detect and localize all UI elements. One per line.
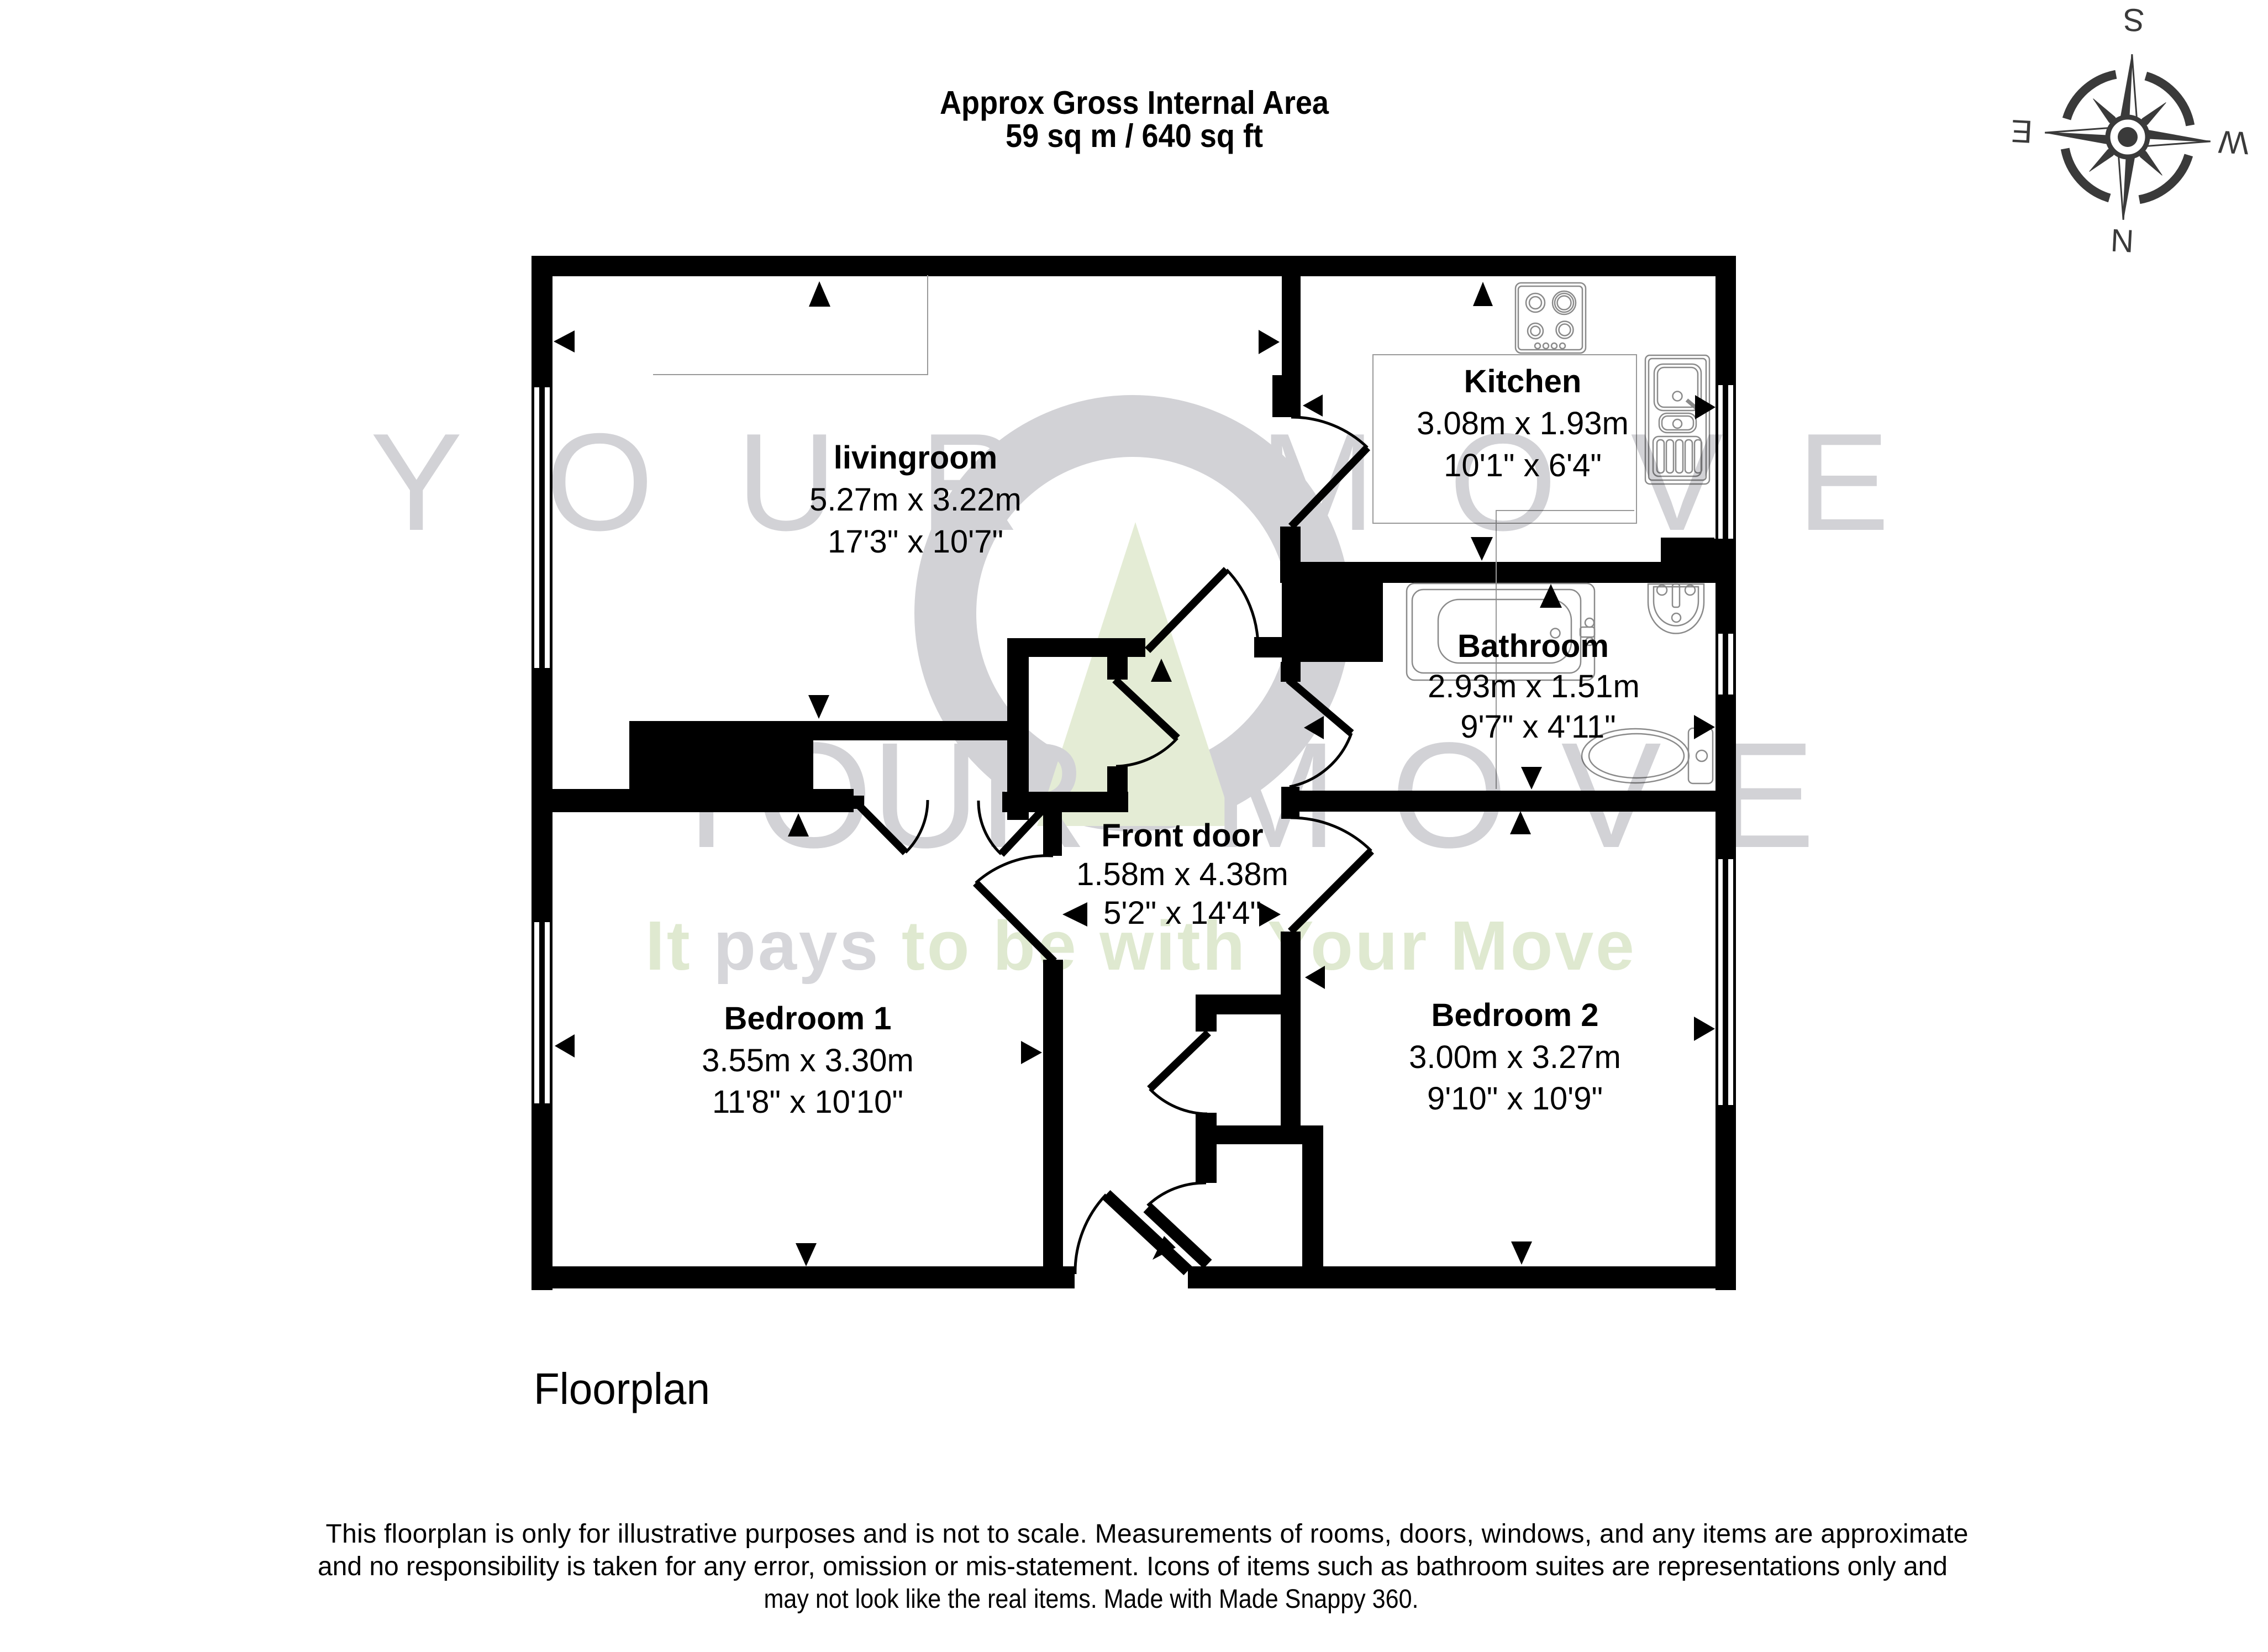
svg-text:1.58m x 4.38m: 1.58m x 4.38m bbox=[1076, 856, 1288, 892]
svg-text:and no responsibility is taken: and no responsibility is taken for any e… bbox=[318, 1552, 1948, 1581]
svg-text:Bedroom 2: Bedroom 2 bbox=[1432, 997, 1599, 1033]
svg-text:11'8" x 10'10": 11'8" x 10'10" bbox=[712, 1084, 903, 1120]
svg-text:livingroom: livingroom bbox=[834, 440, 997, 476]
svg-text:E: E bbox=[2010, 113, 2033, 150]
svg-text:3.55m x 3.30m: 3.55m x 3.30m bbox=[702, 1043, 914, 1078]
svg-text:Kitchen: Kitchen bbox=[1464, 364, 1582, 399]
svg-text:Bedroom 1: Bedroom 1 bbox=[724, 1001, 892, 1037]
svg-text:2.93m x 1.51m: 2.93m x 1.51m bbox=[1428, 669, 1640, 704]
svg-text:This floorplan is only for ill: This floorplan is only for illustrative … bbox=[326, 1519, 1969, 1549]
svg-text:5.27m x 3.22m: 5.27m x 3.22m bbox=[809, 482, 1022, 518]
svg-text:YOUR: YOUR bbox=[656, 711, 1087, 879]
svg-text:9'7" x 4'11": 9'7" x 4'11" bbox=[1460, 709, 1616, 745]
svg-text:5'2" x 14'4": 5'2" x 14'4" bbox=[1103, 895, 1261, 931]
svg-text:17'3" x 10'7": 17'3" x 10'7" bbox=[828, 524, 1003, 560]
svg-text:9'10" x 10'9": 9'10" x 10'9" bbox=[1427, 1081, 1603, 1117]
svg-text:10'1" x 6'4": 10'1" x 6'4" bbox=[1444, 448, 1602, 483]
svg-text:W: W bbox=[2217, 124, 2249, 161]
svg-text:59 sq m / 640 sq ft: 59 sq m / 640 sq ft bbox=[1006, 118, 1263, 154]
svg-text:N: N bbox=[2110, 222, 2135, 259]
svg-text:3.08m x 1.93m: 3.08m x 1.93m bbox=[1417, 406, 1629, 441]
svg-text:Bathroom: Bathroom bbox=[1457, 628, 1609, 664]
svg-text:Approx Gross Internal Area: Approx Gross Internal Area bbox=[940, 85, 1329, 121]
svg-text:Front door: Front door bbox=[1101, 818, 1263, 854]
svg-text:3.00m x 3.27m: 3.00m x 3.27m bbox=[1409, 1039, 1621, 1075]
svg-text:may not look like the real ite: may not look like the real items. Made w… bbox=[764, 1585, 1419, 1614]
svg-text:Floorplan: Floorplan bbox=[534, 1364, 710, 1413]
svg-text:S: S bbox=[2122, 1, 2145, 38]
